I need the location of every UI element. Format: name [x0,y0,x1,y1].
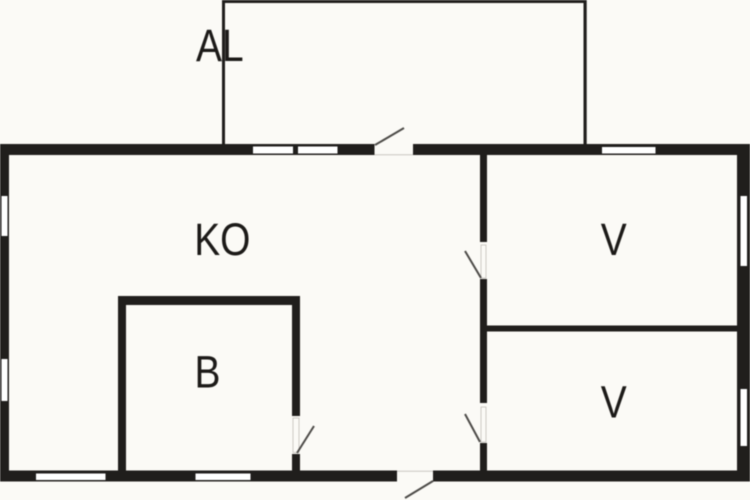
svg-text:V: V [601,214,627,264]
svg-text:AL: AL [196,20,244,70]
svg-text:V: V [601,377,627,427]
svg-text:KO: KO [194,214,250,264]
svg-text:B: B [195,347,221,397]
